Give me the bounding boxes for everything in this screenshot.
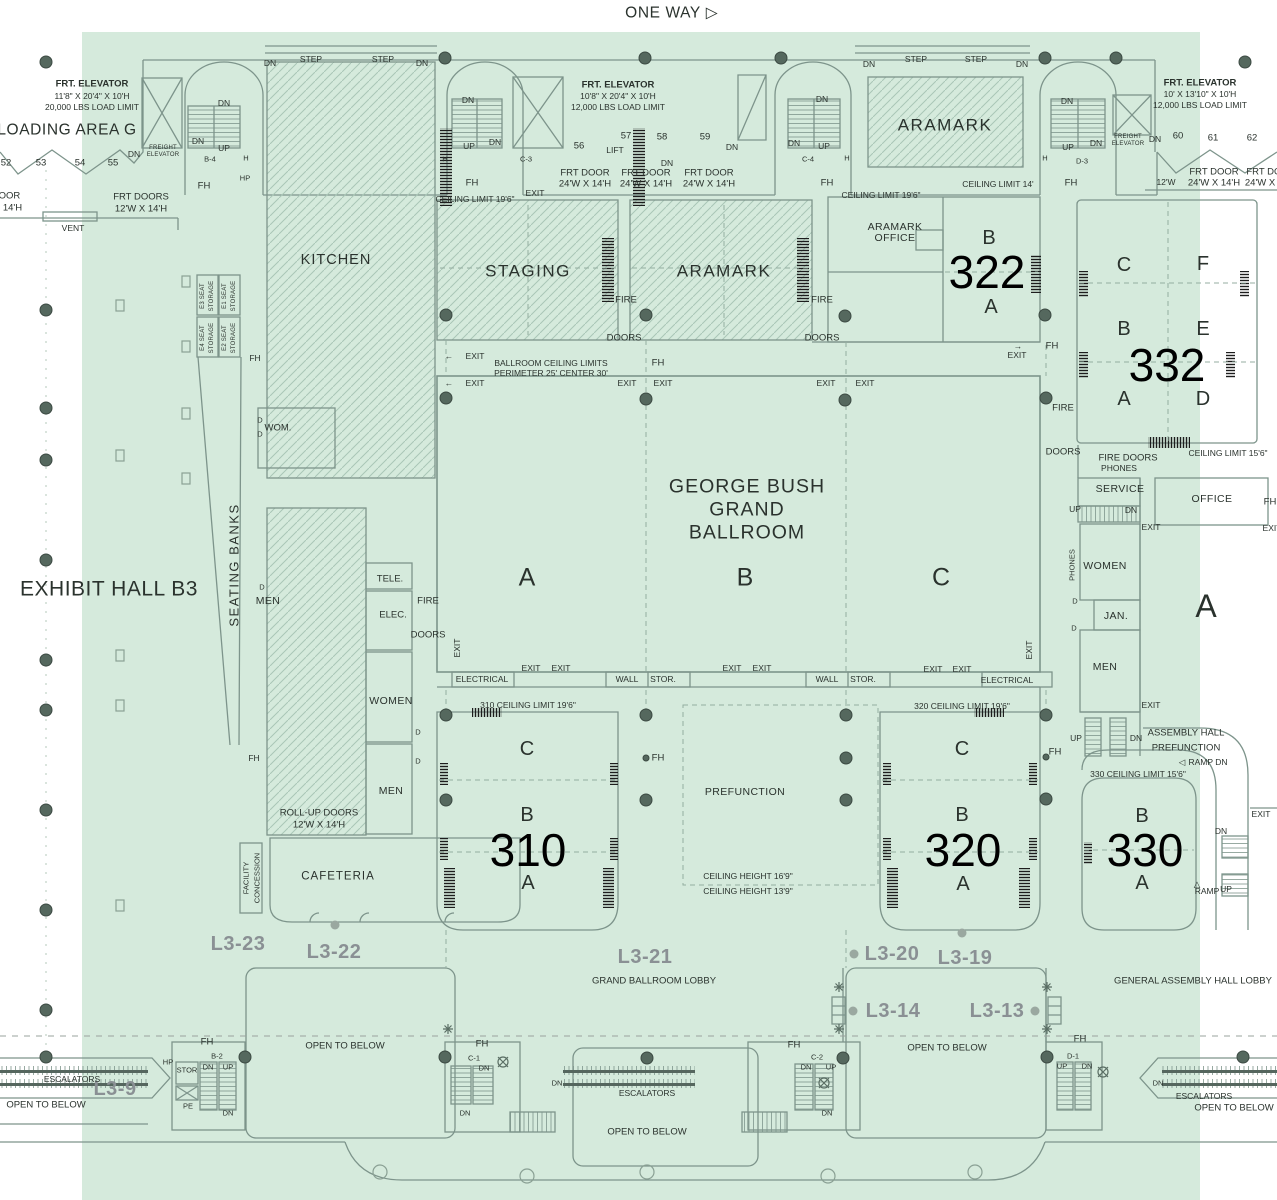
facility-concession-label: CONCESSION (253, 853, 261, 903)
up-label: UP (223, 1063, 233, 1071)
room-310-number: 310 (490, 827, 567, 873)
stair-b4-label: B-4 (204, 155, 216, 163)
door-label: D (415, 728, 420, 736)
dn-label: DN (863, 60, 875, 69)
fh-label: FH (1264, 497, 1277, 507)
door-size-partial: X 14'H (0, 203, 22, 213)
aramark-office-label: ARAMARK (868, 222, 923, 233)
fh-label: FH (652, 358, 665, 368)
fh-label: FH (1046, 341, 1059, 351)
open-to-below-label: OPEN TO BELOW (907, 1043, 986, 1053)
open-to-below-label: OPEN TO BELOW (6, 1100, 85, 1110)
exit-label: EXIT (466, 352, 485, 361)
seat-storage-label: STORAGE (231, 281, 237, 312)
dn-label: DN (489, 138, 501, 147)
frt-elevator-label: FRT. ELEVATOR (56, 79, 129, 89)
room-332e-label: E (1196, 319, 1209, 339)
exit-label: EXIT (1142, 701, 1161, 710)
fh-label: FH (249, 354, 260, 363)
door-label-partial: DOOR (0, 191, 20, 201)
exit-label: EXIT (466, 379, 485, 388)
aramark-room-label: ARAMARK (677, 263, 772, 280)
room-330-number: 330 (1107, 827, 1184, 873)
exit-label: EXIT (522, 664, 541, 673)
elevator-load-label: 20,000 LBS LOAD LIMIT (45, 103, 139, 112)
h-label: H (243, 154, 248, 162)
h-label: H (442, 155, 447, 163)
dn-label: DN (192, 137, 204, 146)
one-way-arrow-icon: ▷ (706, 5, 719, 21)
one-way-label: ONE WAY (625, 5, 701, 21)
room-332c-label: C (1117, 255, 1131, 275)
door-width-label: 12'W (1156, 178, 1175, 187)
men-room-label: MEN (256, 596, 281, 607)
room-330b-label: B (1135, 806, 1148, 826)
dn-label: DN (1153, 1079, 1164, 1087)
frt-door-label: FRT DOOR (560, 168, 609, 178)
fire-doors-label: DOORS (805, 333, 840, 343)
frt-door-size: 24'W X 14'H (559, 179, 611, 189)
fh-label: FH (201, 1037, 214, 1047)
exhibit-hall-label: EXHIBIT HALL B3 (20, 579, 198, 600)
fh-label: FH (821, 178, 834, 188)
room-322b-label: B (982, 228, 995, 248)
room-320b-label: B (955, 805, 968, 825)
vent-label: VENT (62, 224, 85, 233)
phones-label: PHONES (1068, 549, 1076, 581)
room-310b-label: B (520, 805, 533, 825)
dn-label: DN (801, 1063, 812, 1071)
lobby-zone-l3-13: L3-13 (970, 1001, 1025, 1021)
dn-label: DN (128, 150, 140, 159)
men-room-label: MEN (379, 786, 404, 797)
exit-label: EXIT (1252, 810, 1271, 819)
ballroom-c-label: C (932, 566, 950, 591)
elevator-dims-label: 11'8" X 20'4" X 10'H (54, 92, 129, 101)
column-number: 60 (1173, 131, 1184, 141)
elevator-dims-label: 10'8" X 20'4" X 10'H (580, 92, 656, 101)
door-label: D (1071, 624, 1076, 632)
assembly-hall-a-label: A (1195, 590, 1216, 622)
freight-elevator-label: FREIGHT (1114, 134, 1142, 140)
exit-label: EXIT (618, 379, 637, 388)
hp-label: HP (240, 174, 250, 182)
h-label: H (844, 154, 849, 162)
dn-label: DN (661, 159, 673, 168)
exit-label: EXIT (953, 665, 972, 674)
column-number: 56 (574, 141, 585, 151)
dn-label: DN (1130, 734, 1142, 743)
exit-label: EXIT (1008, 351, 1027, 360)
up-label: UP (1070, 734, 1082, 743)
dn-label: DN (552, 1079, 563, 1087)
frt-doors-size: 12'W X 14'H (115, 204, 167, 214)
step-label: STEP (965, 55, 987, 64)
up-label: UP (1220, 885, 1232, 894)
seat-storage-label: STORAGE (231, 323, 237, 354)
stair-c2-label: C-2 (811, 1053, 823, 1061)
dn-label: DN (218, 99, 230, 108)
door-star-symbols (443, 982, 1108, 1088)
room-320c-label: C (955, 739, 969, 759)
column-number: 58 (657, 132, 668, 142)
ceiling-limit-label: CEILING LIMIT 14' (962, 180, 1033, 189)
wom-room-label: WOM. (265, 423, 292, 433)
ballroom-ceiling-label: PERIMETER 25' CENTER 30' (494, 369, 608, 378)
open-to-below-center-well (573, 1048, 758, 1166)
frt-elevator-label: FRT. ELEVATOR (1164, 78, 1237, 88)
lobby-zone-l3-20: L3-20 (865, 944, 920, 964)
up-label: UP (1057, 1062, 1067, 1070)
ceiling-limit-label: 310 CEILING LIMIT 19'6" (480, 701, 576, 710)
escalators-label: ESCALATORS (619, 1089, 675, 1098)
exit-arrow-icon: ← (445, 379, 454, 388)
dn-label: DN (1090, 139, 1102, 148)
room-330a-label: A (1135, 873, 1148, 893)
ballroom-title: GEORGE BUSH (669, 477, 825, 497)
elevator-load-label: 12,000 LBS LOAD LIMIT (1153, 101, 1247, 110)
exit-label: EXIT (526, 189, 545, 198)
aramark-room-label: ARAMARK (898, 117, 993, 134)
door-label: D (1072, 597, 1077, 605)
room-332d-label: D (1196, 389, 1210, 409)
hp-label: HP (163, 1058, 173, 1066)
ceiling-limit-label: 330 CEILING LIMIT 15'6" (1090, 770, 1186, 779)
seat-storage-label: STORAGE (209, 323, 215, 354)
aramark-office-label: OFFICE (875, 233, 916, 244)
exit-label: EXIT (723, 664, 742, 673)
exit-label: EXIT (552, 664, 571, 673)
stair-c4-label: C-4 (802, 155, 814, 163)
exit-label: EXIT (1025, 641, 1034, 660)
ramp-label: RAMP (1195, 887, 1220, 896)
frt-door-label: FRT DOOR (1189, 167, 1238, 177)
dn-label: DN (1149, 135, 1161, 144)
up-label: UP (1062, 143, 1074, 152)
exit-label: EXIT (1142, 523, 1161, 532)
wall-storage-label: WALL (816, 675, 839, 684)
column-number: 61 (1208, 133, 1219, 143)
open-to-below-left-well (246, 968, 455, 1138)
exit-label: EXIT (453, 639, 462, 658)
room-320a-label: A (956, 874, 969, 894)
fh-label: FH (1065, 178, 1078, 188)
ramp-dn-arrow-icon: ◁ (1179, 758, 1186, 767)
exit-label: EXIT (817, 379, 836, 388)
ballroom-ceiling-label: BALLROOM CEILING LIMITS (494, 359, 607, 368)
dn-label: DN (264, 59, 276, 68)
facility-concession-label: FACILITY (242, 862, 250, 895)
fh-label: FH (466, 178, 479, 188)
dn-label: DN (788, 139, 800, 148)
fire-doors-label: FIRE (811, 295, 833, 305)
fh-label: FH (652, 753, 665, 763)
assembly-prefunction-label: PREFUNCTION (1152, 743, 1221, 753)
open-to-below-label: OPEN TO BELOW (305, 1041, 384, 1051)
ceiling-height-label: CEILING HEIGHT 13'9" (703, 887, 793, 896)
step-label: STEP (905, 55, 927, 64)
prefunction-label: PREFUNCTION (705, 787, 785, 798)
column-number: 62 (1247, 133, 1258, 143)
seat-storage-label: E1 SEAT (222, 283, 228, 309)
wall-storage-label: STOR. (850, 675, 876, 684)
frt-door-size: 24'W X 14'H (1245, 178, 1277, 188)
dn-label: DN (816, 95, 828, 104)
pe-label: PE (183, 1102, 193, 1110)
freight-elevator-label: FREIGHT (149, 145, 177, 151)
exit-label: EXIT (753, 664, 772, 673)
frt-door-size: 24'W X 14'H (1188, 178, 1240, 188)
ballroom-title: GRAND (709, 500, 784, 520)
room-332a-label: A (1117, 389, 1130, 409)
dn-label: DN (223, 1109, 234, 1117)
assembly-prefunction-label: ASSEMBLY HALL (1148, 728, 1225, 738)
column-number: 52 (1, 158, 12, 168)
kitchen-room-label: KITCHEN (301, 253, 372, 268)
escalators-label: ESCALATORS (1176, 1092, 1232, 1101)
kitchen-room (267, 62, 435, 478)
exit-label: EXIT (924, 665, 943, 674)
ceiling-limit-label: 320 CEILING LIMIT 19'6" (914, 702, 1010, 711)
freight-elevator-label: ELEVATOR (147, 152, 180, 158)
h-label: H (1042, 154, 1047, 162)
ramp-dn-label: RAMP DN (1188, 758, 1227, 767)
door-label: D (259, 583, 264, 591)
ballroom-b-label: B (737, 566, 754, 591)
elevator-dims-label: 10' X 13'10" X 10'H (1164, 90, 1237, 99)
room-332-number: 332 (1129, 342, 1206, 388)
seat-storage-label: E2 SEAT (222, 325, 228, 351)
frt-doors-label: FRT DOORS (113, 192, 169, 202)
exit-label: EXIT (1263, 524, 1277, 533)
dn-label: DN (1082, 1062, 1093, 1070)
ceiling-limit-label: CEILING LIMIT 19'6" (435, 195, 514, 204)
stair-c3-label: C-3 (520, 155, 532, 163)
wall-storage-label: WALL (616, 675, 639, 684)
frt-door-size: 24'W X 14'H (620, 179, 672, 189)
loading-area-label: LOADING AREA G (0, 122, 137, 138)
up-label: UP (218, 144, 230, 153)
electrical-label: ELECTRICAL (456, 675, 508, 684)
seat-storage-label: E3 SEAT (200, 283, 206, 309)
dn-label: DN (462, 96, 474, 105)
door-label: D (415, 757, 420, 765)
seating-banks-storage (267, 508, 366, 835)
dn-label: DN (479, 1064, 490, 1072)
lobby-zone-l3-19: L3-19 (938, 948, 993, 968)
dn-label: DN (726, 143, 738, 152)
exit-label: EXIT (654, 379, 673, 388)
stair-d3-label: D-3 (1076, 157, 1088, 165)
frt-door-size: 24'W X 14'H (683, 179, 735, 189)
frt-elevator-label: FRT. ELEVATOR (582, 80, 655, 90)
jan-room-label: JAN. (1104, 611, 1128, 622)
floor-plan: ONE WAY ▷ FRT. ELEVATOR 11'8" X 20'4" X … (0, 0, 1277, 1200)
dn-label: DN (1061, 97, 1073, 106)
lobby-zone-l3-22: L3-22 (307, 942, 362, 962)
wall-storage-label: STOR. (650, 675, 676, 684)
dn-label: DN (460, 1109, 471, 1117)
room-310a-label: A (521, 873, 534, 893)
seating-banks-label: SEATING BANKS (228, 503, 241, 626)
exit-label: EXIT (856, 379, 875, 388)
seat-storage-label: E4 SEAT (200, 325, 206, 351)
stair-d1-label: D-1 (1067, 1052, 1079, 1060)
open-to-below-label: OPEN TO BELOW (607, 1127, 686, 1137)
elevator-load-label: 12,000 LBS LOAD LIMIT (571, 103, 665, 112)
fire-doors-label: DOORS (411, 630, 446, 640)
cafeteria-label: CAFETERIA (301, 871, 375, 883)
ceiling-height-label: CEILING HEIGHT 16'9" (703, 872, 793, 881)
column-number: 54 (75, 158, 86, 168)
door-label: D (257, 430, 262, 438)
rollup-doors-label: ROLL-UP DOORS (280, 808, 358, 818)
escalators-label: ESCALATORS (44, 1075, 100, 1084)
fire-doors-label: FIRE DOORS (1098, 453, 1157, 463)
dn-label: DN (1125, 506, 1137, 515)
room-320-number: 320 (925, 827, 1002, 873)
column-number: 55 (108, 158, 119, 168)
lift-label: LIFT (606, 146, 623, 155)
room-322-number: 322 (949, 249, 1026, 295)
lobby-zone-l3-21: L3-21 (618, 947, 673, 967)
tele-room-label: TELE. (377, 574, 403, 584)
step-label: STEP (372, 55, 394, 64)
exit-arrow-icon: ← (445, 352, 454, 361)
fh-label: FH (198, 181, 211, 191)
staging-room-label: STAGING (485, 263, 571, 280)
storage-label: STOR (177, 1066, 198, 1074)
dn-label: DN (416, 59, 428, 68)
fh-label: FH (476, 1039, 489, 1049)
column-number: 59 (700, 132, 711, 142)
lobby-zone-l3-14: L3-14 (866, 1001, 921, 1021)
fire-doors-label: FIRE (1052, 403, 1074, 413)
dn-label: DN (1016, 60, 1028, 69)
women-room-label: WOMEN (1083, 561, 1126, 572)
ballroom-title: BALLROOM (689, 523, 805, 543)
room-332b-label: B (1117, 319, 1130, 339)
column-number: 57 (621, 131, 632, 141)
women-room-label: WOMEN (369, 696, 412, 707)
room-322a-label: A (984, 297, 997, 317)
office-room-label: OFFICE (1192, 494, 1233, 505)
stair-b2-label: B-2 (211, 1052, 223, 1060)
dn-label: DN (1215, 827, 1227, 836)
frt-door-label: FRT DOOR (1246, 167, 1277, 177)
stair-c1-label: C-1 (468, 1054, 480, 1062)
general-assembly-lobby-label: GENERAL ASSEMBLY HALL LOBBY (1114, 976, 1272, 986)
fire-doors-label: FIRE (615, 295, 637, 305)
dn-label: DN (822, 1109, 833, 1117)
up-label: UP (826, 1063, 836, 1071)
fh-label: FH (1049, 747, 1062, 757)
frt-door-label: FRT DOOR (684, 168, 733, 178)
up-label: UP (818, 142, 830, 151)
fire-doors-label: DOORS (1046, 447, 1081, 457)
dn-label: DN (203, 1063, 214, 1071)
step-label: STEP (300, 55, 322, 64)
fire-doors-label: DOORS (607, 333, 642, 343)
room-310c-label: C (520, 739, 534, 759)
grand-ballroom-lobby-label: GRAND BALLROOM LOBBY (592, 976, 716, 986)
phones-label: PHONES (1101, 464, 1137, 473)
freight-elevator-label: ELEVATOR (1112, 141, 1145, 147)
electrical-label: ELECTRICAL (981, 676, 1033, 685)
column-number: 53 (36, 158, 47, 168)
ceiling-limit-label: CEILING LIMIT 15'6" (1188, 449, 1267, 458)
room-332f-label: F (1197, 254, 1209, 274)
elec-room (366, 591, 412, 650)
elec-room-label: ELEC. (379, 610, 406, 620)
up-label: UP (463, 142, 475, 151)
fire-doors-label: FIRE (417, 596, 439, 606)
lobby-zone-l3-23: L3-23 (211, 934, 266, 954)
ceiling-limit-label: CEILING LIMIT 19'6" (841, 191, 920, 200)
men-room-label: MEN (1093, 662, 1118, 673)
fh-label: FH (788, 1040, 801, 1050)
service-room-label: SERVICE (1096, 484, 1145, 495)
open-to-below-label: OPEN TO BELOW (1194, 1103, 1273, 1113)
frt-door-label: FRT DOOR (621, 168, 670, 178)
door-label: D (257, 416, 262, 424)
up-label: UP (1069, 505, 1081, 514)
fh-label: FH (1074, 1034, 1087, 1044)
rollup-doors-size: 12'W X 14'H (293, 820, 345, 830)
seat-storage-label: STORAGE (209, 281, 215, 312)
fh-label: FH (248, 754, 259, 763)
ballroom-a-label: A (519, 566, 536, 591)
